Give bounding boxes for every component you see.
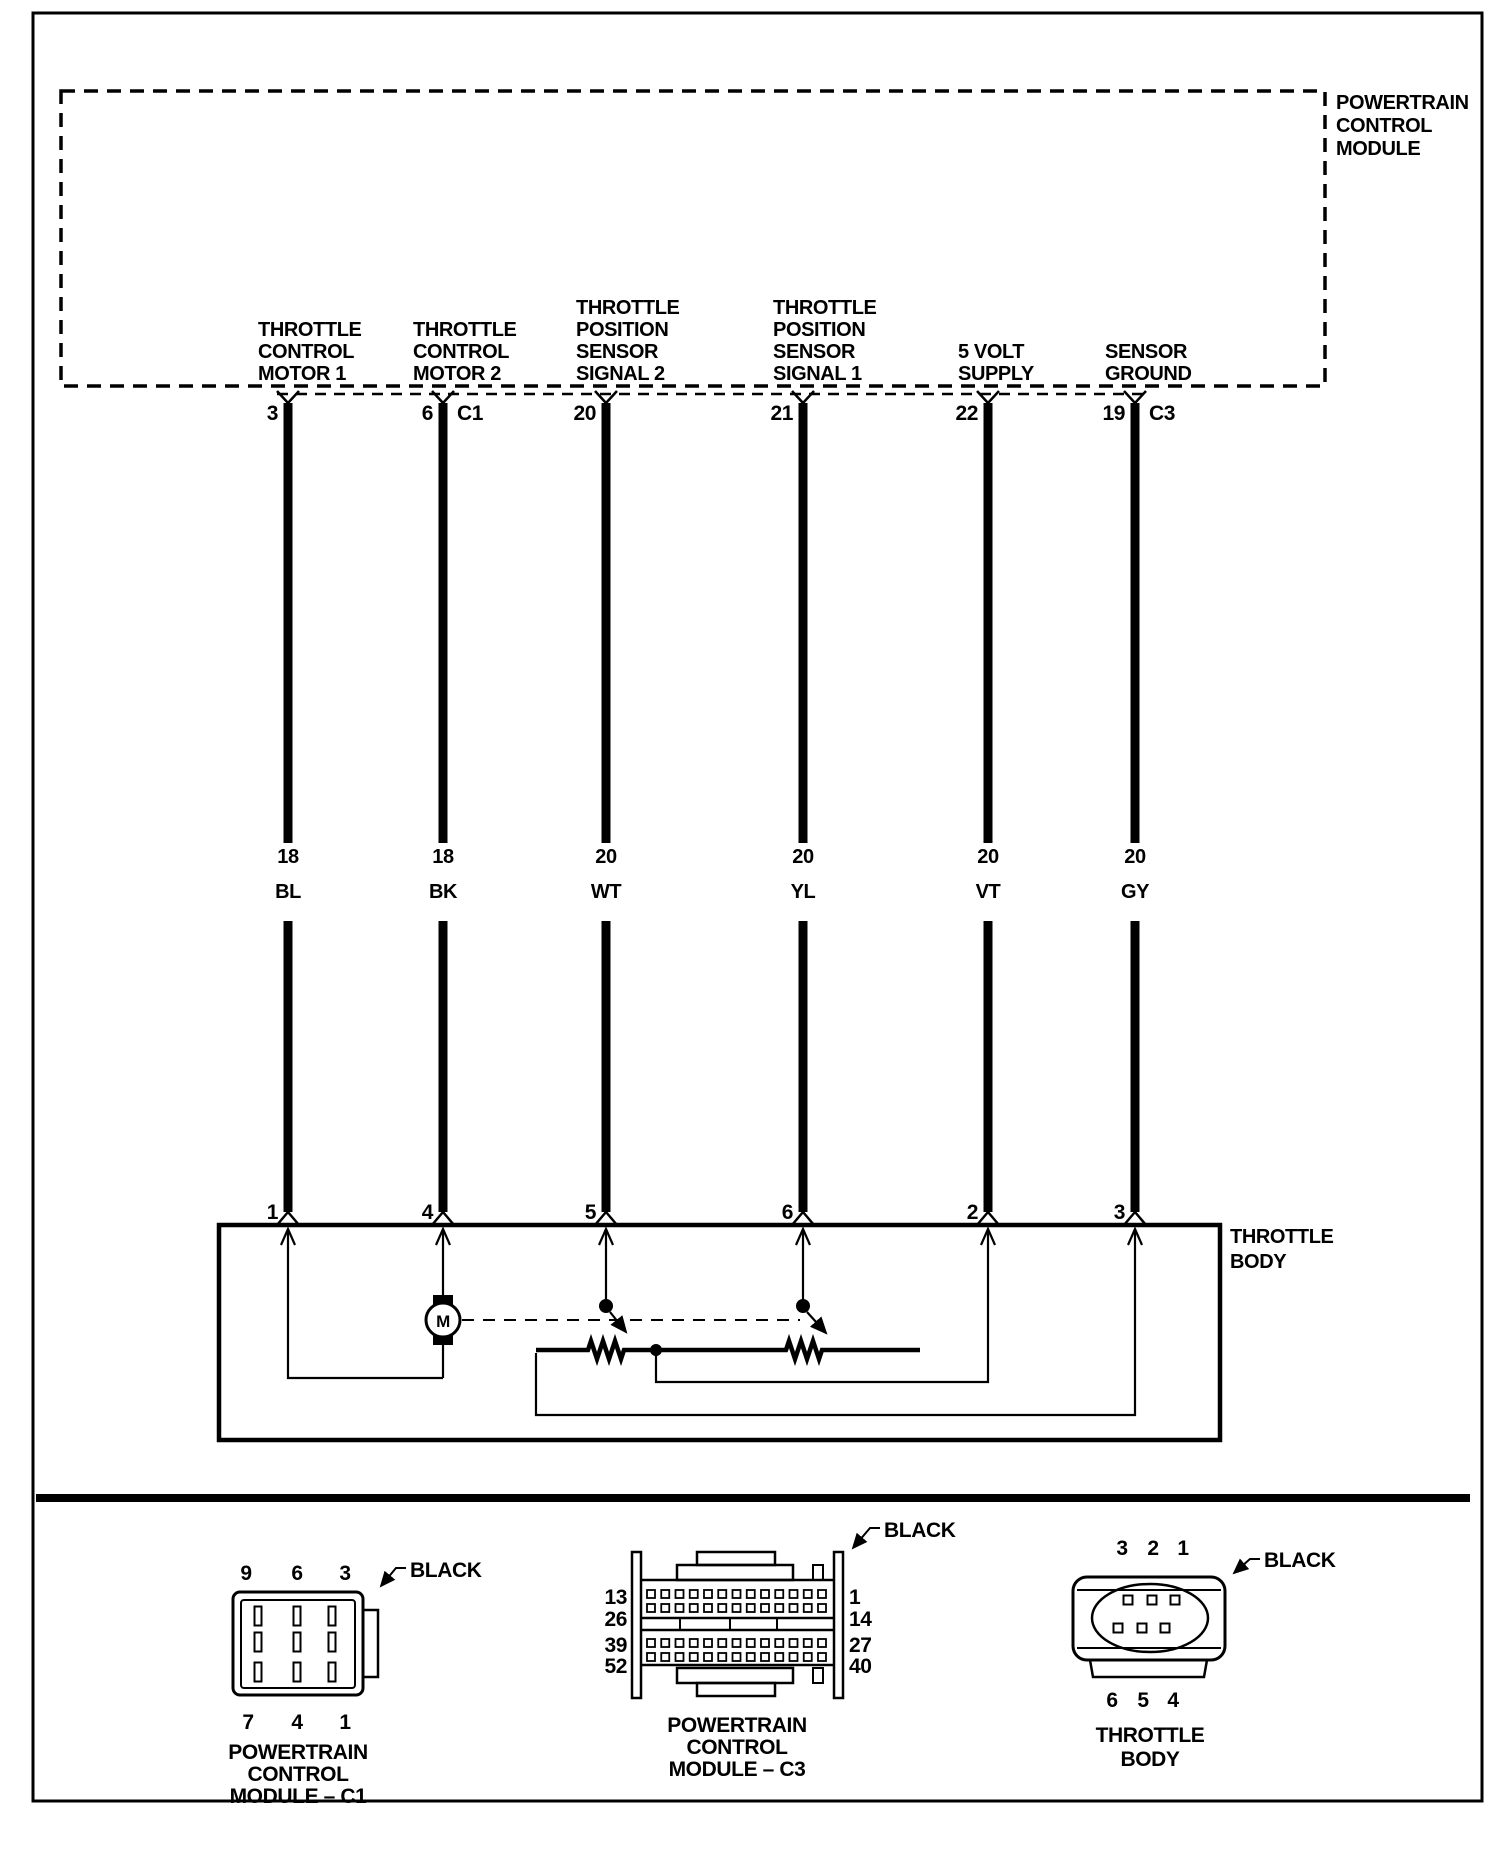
c3-pin bbox=[661, 1604, 669, 1612]
pcm-title: POWERTRAIN CONTROL MODULE bbox=[1336, 92, 1469, 160]
c1-pin-slot bbox=[255, 1663, 262, 1682]
c3-mid-separators bbox=[680, 1618, 777, 1630]
c3-pin bbox=[761, 1590, 769, 1598]
c3-caption-line: CONTROL bbox=[686, 1736, 788, 1759]
wire-function-label: CONTROL bbox=[413, 341, 509, 363]
c3-pin bbox=[790, 1639, 798, 1647]
c3-pin bbox=[647, 1590, 655, 1598]
c3-pin bbox=[661, 1590, 669, 1598]
c1-pin-slot bbox=[329, 1633, 336, 1652]
c3-pin-number: 40 bbox=[849, 1655, 872, 1678]
tb-pin bbox=[1138, 1624, 1147, 1633]
tb-pin bbox=[1171, 1596, 1180, 1605]
throttle-body-box bbox=[219, 1225, 1220, 1440]
wire-throttle-control-motor-1: THROTTLECONTROLMOTOR 1318BL1 bbox=[258, 319, 362, 1245]
junction-dot bbox=[650, 1344, 662, 1356]
c3-pin bbox=[733, 1604, 741, 1612]
wiper-arrow-icon bbox=[610, 1312, 626, 1332]
pcm-pin-number: 6 bbox=[422, 402, 433, 425]
c3-pin bbox=[818, 1639, 826, 1647]
c3-pin bbox=[676, 1604, 684, 1612]
wires-group: THROTTLECONTROLMOTOR 1318BL1THROTTLECONT… bbox=[258, 297, 1192, 1245]
c3-pin bbox=[775, 1590, 783, 1598]
pcm-pin-number: 20 bbox=[573, 402, 596, 425]
c3-pin bbox=[690, 1604, 698, 1612]
c3-pin bbox=[733, 1639, 741, 1647]
section-divider bbox=[36, 1494, 1470, 1502]
c3-pin bbox=[804, 1590, 812, 1598]
c3-pin bbox=[661, 1653, 669, 1661]
c3-top-key-outer bbox=[677, 1565, 793, 1580]
wire-function-label: THROTTLE bbox=[576, 297, 680, 319]
motor-return-line bbox=[288, 1230, 443, 1378]
tb-pin-number: 3 bbox=[1116, 1537, 1127, 1560]
c3-pin bbox=[761, 1604, 769, 1612]
c3-black-arrow-icon bbox=[853, 1528, 880, 1548]
wire-color-label: WT bbox=[591, 881, 621, 903]
c3-pin bbox=[661, 1639, 669, 1647]
c3-pin bbox=[704, 1639, 712, 1647]
c3-pin bbox=[761, 1653, 769, 1661]
wire-color-label: BL bbox=[275, 881, 301, 903]
wire-gauge-label: 20 bbox=[1124, 846, 1146, 868]
c3-top-tab bbox=[813, 1565, 823, 1580]
c3-pin bbox=[790, 1604, 798, 1612]
page-border bbox=[33, 13, 1482, 1801]
tb-caption-line: THROTTLE bbox=[1096, 1724, 1205, 1747]
c1-pin-slot bbox=[255, 1633, 262, 1652]
tb-pin bbox=[1114, 1624, 1123, 1633]
c1-pin-number: 1 bbox=[339, 1711, 351, 1734]
wire-color-label: BK bbox=[429, 881, 458, 903]
c3-pin bbox=[704, 1653, 712, 1661]
c3-pin bbox=[690, 1653, 698, 1661]
c3-end-left bbox=[632, 1552, 641, 1698]
wire-sensor-ground: SENSORGROUND19C320GY3 bbox=[1102, 341, 1191, 1245]
c3-pin-number: 52 bbox=[604, 1655, 627, 1678]
c3-pin bbox=[647, 1604, 655, 1612]
c3-pin-number: 27 bbox=[849, 1634, 872, 1657]
wire-gauge-label: 18 bbox=[277, 846, 299, 868]
c3-pin bbox=[676, 1590, 684, 1598]
c3-pin bbox=[647, 1653, 655, 1661]
c3-pin bbox=[747, 1653, 755, 1661]
c3-pin bbox=[690, 1639, 698, 1647]
c1-pin-slot bbox=[329, 1607, 336, 1626]
c3-pin-grid bbox=[647, 1590, 826, 1661]
tb-color-label: BLACK bbox=[1264, 1549, 1336, 1572]
wiper-contact-signal1 bbox=[796, 1299, 810, 1313]
terminal-top-icon bbox=[792, 391, 814, 403]
c3-pin bbox=[790, 1653, 798, 1661]
c3-color-label: BLACK bbox=[884, 1519, 956, 1542]
tb-pin-number: 5 bbox=[1137, 1689, 1149, 1712]
wire-gauge-label: 20 bbox=[792, 846, 814, 868]
c1-pin-slot bbox=[294, 1633, 301, 1652]
wire-gauge-label: 20 bbox=[595, 846, 617, 868]
c3-bottom-key-outer bbox=[677, 1668, 793, 1683]
c3-pin bbox=[761, 1639, 769, 1647]
c3-pin bbox=[790, 1590, 798, 1598]
wire-five-volt-supply: 5 VOLTSUPPLY2220VT2 bbox=[955, 341, 1034, 1245]
throttle-body-label-line: THROTTLE bbox=[1230, 1226, 1334, 1248]
tb-pin-number: 4 bbox=[1167, 1689, 1179, 1712]
tb-pin-number: 2 bbox=[1147, 1537, 1158, 1560]
c3-bottom-tab bbox=[813, 1668, 823, 1683]
wire-gauge-label: 20 bbox=[977, 846, 999, 868]
pcm-title-line: CONTROL bbox=[1336, 115, 1432, 137]
c3-pin bbox=[775, 1604, 783, 1612]
throttle-body-circuit: M bbox=[288, 1230, 1135, 1415]
wire-function-label: POSITION bbox=[773, 319, 865, 341]
wire-function-label: SENSOR bbox=[576, 341, 659, 363]
c1-connector-inner bbox=[241, 1600, 355, 1688]
c3-pin bbox=[647, 1639, 655, 1647]
wire-throttle-position-sensor-signal-2: THROTTLEPOSITIONSENSORSIGNAL 22020WT5 bbox=[573, 297, 679, 1245]
c3-pin-number: 13 bbox=[604, 1586, 627, 1609]
tb-base bbox=[1090, 1660, 1207, 1677]
terminal-top-icon bbox=[432, 391, 454, 403]
wire-function-label: SIGNAL 1 bbox=[773, 363, 862, 385]
wire-color-label: GY bbox=[1121, 881, 1150, 903]
c1-pin-slot bbox=[255, 1607, 262, 1626]
pcm-pin-number: 21 bbox=[770, 402, 793, 425]
pcm-pin-number: 22 bbox=[955, 402, 978, 425]
c1-pin-number: 7 bbox=[242, 1711, 253, 1734]
c3-pin bbox=[818, 1590, 826, 1598]
c3-caption-line: MODULE – C3 bbox=[669, 1758, 806, 1781]
tb-pin-number: 6 bbox=[782, 1201, 793, 1224]
wire-function-label: MOTOR 1 bbox=[258, 363, 346, 385]
wire-function-label: GROUND bbox=[1105, 363, 1192, 385]
c1-color-label: BLACK bbox=[410, 1559, 482, 1582]
c1-black-arrow-icon bbox=[381, 1568, 406, 1586]
tb-pin bbox=[1124, 1596, 1133, 1605]
c3-pin bbox=[676, 1639, 684, 1647]
c3-pin bbox=[747, 1590, 755, 1598]
c1-pin-number: 3 bbox=[339, 1562, 350, 1585]
wire-function-label: 5 VOLT bbox=[958, 341, 1024, 363]
connector-c3-section: BLACK 13 26 39 52 1 14 27 40 POWERTRAIN … bbox=[604, 1519, 955, 1781]
wiper-contact-signal2 bbox=[599, 1299, 613, 1313]
c3-bottom-key-inner bbox=[697, 1683, 775, 1696]
wire-function-label: SENSOR bbox=[773, 341, 856, 363]
ground-line bbox=[536, 1230, 1135, 1415]
c1-caption-line: CONTROL bbox=[247, 1763, 349, 1786]
tb-pin-number: 1 bbox=[267, 1201, 279, 1224]
c1-connector-tab bbox=[363, 1610, 378, 1677]
pcm-connector-id: C3 bbox=[1149, 402, 1175, 425]
c3-pin bbox=[733, 1653, 741, 1661]
c3-pin-number: 39 bbox=[604, 1634, 627, 1657]
c3-pin bbox=[718, 1653, 726, 1661]
c1-pin-slots bbox=[255, 1607, 336, 1682]
c3-pin bbox=[818, 1653, 826, 1661]
wire-throttle-control-motor-2: THROTTLECONTROLMOTOR 26C118BK4 bbox=[413, 319, 517, 1245]
tb-pin-number: 3 bbox=[1114, 1201, 1125, 1224]
tb-pin-number: 1 bbox=[1177, 1537, 1189, 1560]
tb-seal-ellipse bbox=[1092, 1584, 1208, 1652]
c3-pin-number: 1 bbox=[849, 1586, 861, 1609]
c1-pin-number: 4 bbox=[291, 1711, 303, 1734]
throttle-body-section: THROTTLE BODY M bbox=[219, 1225, 1334, 1440]
c1-caption-line: MODULE – C1 bbox=[230, 1785, 368, 1808]
wire-function-label: THROTTLE bbox=[258, 319, 362, 341]
c3-pin bbox=[775, 1653, 783, 1661]
pcm-connector-id: C1 bbox=[457, 402, 484, 425]
pcm-title-line: MODULE bbox=[1336, 138, 1420, 160]
wire-function-label: SENSOR bbox=[1105, 341, 1188, 363]
c3-pin bbox=[690, 1590, 698, 1598]
c3-pin bbox=[804, 1653, 812, 1661]
c3-pin bbox=[733, 1590, 741, 1598]
throttle-body-label-line: BODY bbox=[1230, 1251, 1287, 1273]
c3-pin-number: 26 bbox=[604, 1608, 627, 1631]
pcm-pin-number: 19 bbox=[1102, 402, 1125, 425]
tb-pin-grid bbox=[1114, 1596, 1180, 1633]
c3-pin bbox=[804, 1639, 812, 1647]
c3-pin bbox=[775, 1639, 783, 1647]
wiper-arrow-icon bbox=[807, 1312, 826, 1333]
pcm-title-line: POWERTRAIN bbox=[1336, 92, 1469, 114]
resistor-track bbox=[536, 1341, 920, 1359]
c1-pin-slot bbox=[294, 1663, 301, 1682]
c3-top-key-inner bbox=[697, 1552, 775, 1565]
c1-pin-slot bbox=[329, 1663, 336, 1682]
wire-function-label: CONTROL bbox=[258, 341, 354, 363]
wiring-diagram: POWERTRAIN CONTROL MODULE THROTTLECONTRO… bbox=[0, 0, 1504, 1860]
motor-label: M bbox=[436, 1312, 450, 1331]
c3-pin bbox=[804, 1604, 812, 1612]
tb-pin-number: 2 bbox=[967, 1201, 978, 1224]
c3-pin bbox=[718, 1639, 726, 1647]
c3-pin bbox=[704, 1604, 712, 1612]
wire-function-label: SUPPLY bbox=[958, 363, 1035, 385]
c1-pin-slot bbox=[294, 1607, 301, 1626]
wire-function-label: SIGNAL 2 bbox=[576, 363, 665, 385]
c3-pin-number: 14 bbox=[849, 1608, 872, 1631]
c1-pin-number: 6 bbox=[291, 1562, 302, 1585]
c3-pin bbox=[718, 1590, 726, 1598]
c3-pin bbox=[747, 1639, 755, 1647]
pcm-pin-number: 3 bbox=[267, 402, 278, 425]
wire-function-label: THROTTLE bbox=[773, 297, 877, 319]
c3-pin bbox=[704, 1590, 712, 1598]
tb-caption-line: BODY bbox=[1120, 1748, 1179, 1771]
connector-tb-section: 3 2 1 BLACK 6 5 4 THROTTLE BODY bbox=[1073, 1537, 1336, 1771]
c3-end-right bbox=[834, 1552, 843, 1698]
wire-gauge-label: 18 bbox=[432, 846, 454, 868]
c1-pin-number: 9 bbox=[240, 1562, 251, 1585]
schematic-page: POWERTRAIN CONTROL MODULE THROTTLECONTRO… bbox=[0, 0, 1504, 1860]
connector-c1-section: 9 6 3 BLACK 7 4 1 POWERTRAIN CONTROL MOD… bbox=[228, 1559, 481, 1808]
tb-pin-number: 6 bbox=[1106, 1689, 1117, 1712]
supply-line bbox=[656, 1230, 988, 1382]
wire-function-label: POSITION bbox=[576, 319, 668, 341]
wire-function-label: THROTTLE bbox=[413, 319, 517, 341]
tb-pin-number: 5 bbox=[585, 1201, 597, 1224]
tb-black-arrow-icon bbox=[1234, 1559, 1260, 1573]
wire-function-label: MOTOR 2 bbox=[413, 363, 501, 385]
c3-pin bbox=[747, 1604, 755, 1612]
c1-caption-line: POWERTRAIN bbox=[228, 1741, 368, 1764]
wire-throttle-position-sensor-signal-1: THROTTLEPOSITIONSENSORSIGNAL 12120YL6 bbox=[770, 297, 876, 1245]
wire-color-label: VT bbox=[976, 881, 1001, 903]
c3-pin bbox=[818, 1604, 826, 1612]
wire-color-label: YL bbox=[791, 881, 816, 903]
tb-pin-number: 4 bbox=[422, 1201, 434, 1224]
c3-pin bbox=[676, 1653, 684, 1661]
c3-caption-line: POWERTRAIN bbox=[667, 1714, 807, 1737]
c3-pin bbox=[718, 1604, 726, 1612]
tb-pin bbox=[1161, 1624, 1170, 1633]
tb-pin bbox=[1148, 1596, 1157, 1605]
